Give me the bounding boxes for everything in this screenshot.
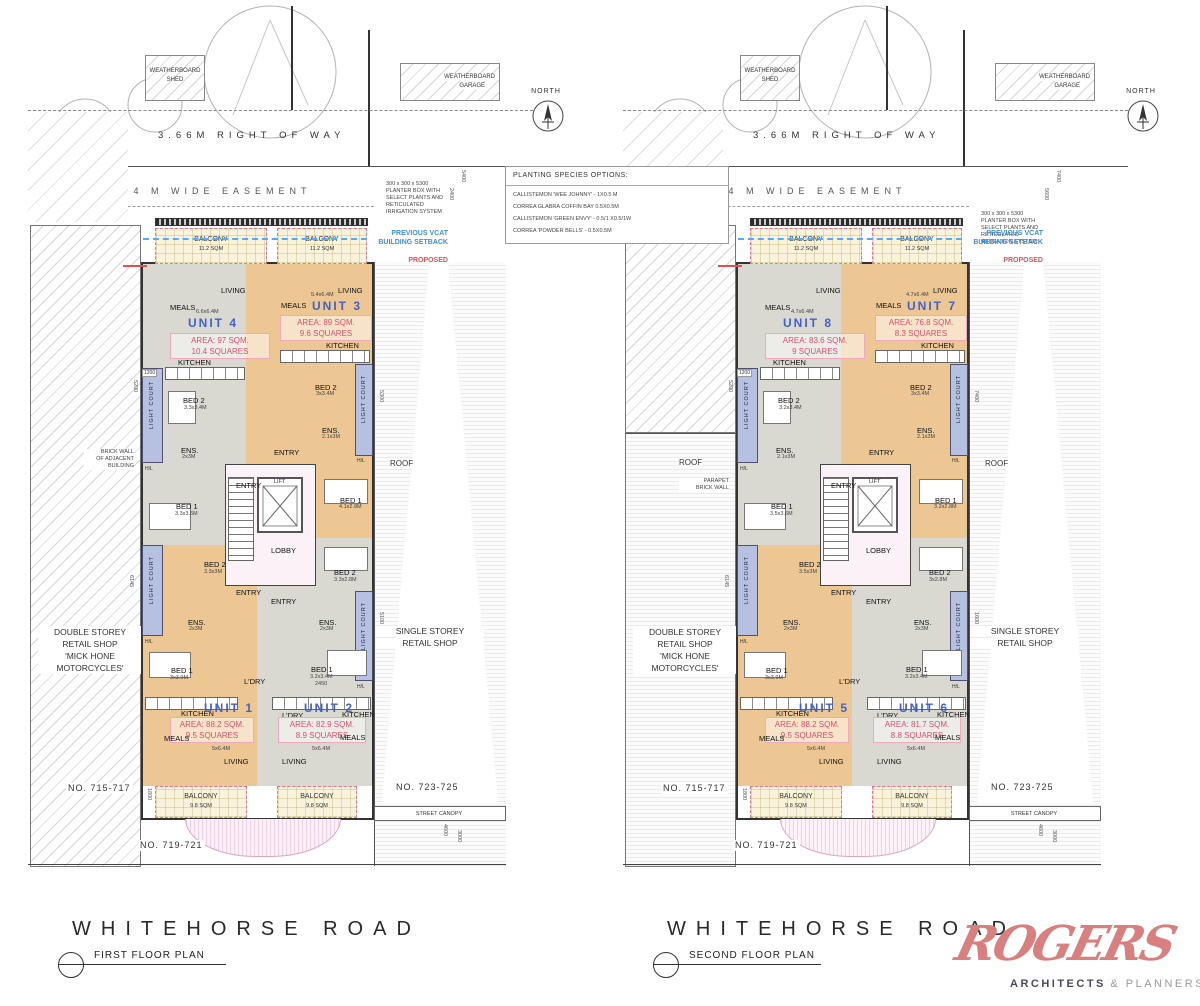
lift-label: LIFT — [869, 479, 880, 486]
retail-right-label-1: SINGLE STOREY — [376, 626, 484, 636]
dim-label: 5400 — [460, 170, 466, 182]
unit-b-squares: 8.3 SQUARES — [878, 328, 964, 339]
unit-b-ens-dim: 2.1x3M — [322, 434, 340, 441]
hl-label: H/L — [740, 466, 748, 472]
garage-label-2: GARAGE — [1054, 83, 1080, 90]
unit-d-dim: 5x6.4M — [907, 746, 925, 753]
no-719-721-label: NO. 719-721 — [138, 840, 205, 851]
unit-c-living: LIVING — [224, 757, 249, 766]
hl-label: H/L — [740, 639, 748, 645]
unit-b-area: AREA: 89 SQM. — [283, 317, 369, 328]
vcat-label-1: PREVIOUS VCAT — [961, 229, 1043, 238]
roof-label: ROOF — [985, 459, 1008, 469]
no-715-717-label: NO. 715-717 — [66, 783, 133, 794]
unit-c-ens-dim: 2x3M — [189, 626, 202, 633]
retail-left-label-2: RETAIL SHOP — [38, 638, 142, 650]
retail-left-label-1: DOUBLE STOREY — [633, 626, 737, 638]
balcony-label: BALCONY — [156, 793, 246, 801]
lift-label: LIFT — [274, 479, 285, 486]
north-compass-icon — [530, 98, 566, 134]
side-note-1: BRICK WALL — [84, 449, 134, 456]
dim-label: 5200 — [727, 380, 733, 392]
entry-canopy — [780, 819, 936, 857]
light-court-right-upper: LIGHT COURT — [950, 364, 968, 456]
right-of-way-label: 3.66M RIGHT OF WAY — [753, 130, 940, 141]
balcony-sqm: 9.8 SQM — [156, 803, 246, 810]
balcony-top-left: BALCONY 11.2 SQM — [155, 228, 267, 264]
planter-box-strip — [155, 218, 368, 226]
balcony-sqm: 9.8 SQM — [751, 803, 841, 810]
no-723-725-label: NO. 723-725 — [989, 782, 1056, 793]
light-court-label: LIGHT COURT — [361, 602, 367, 650]
entry-label: ENTRY — [236, 481, 261, 490]
unit-b-name: UNIT 3 — [312, 299, 362, 313]
lift-cross-icon — [854, 479, 896, 531]
hl-label: H/L — [145, 639, 153, 645]
planter-note-2: PLANTER BOX WITH — [386, 188, 440, 195]
light-court-label: LIGHT COURT — [149, 381, 155, 429]
north-label: NORTH — [523, 88, 569, 96]
hl-label: H/L — [357, 684, 365, 690]
unit-b-dim: 4.7x6.4M — [906, 292, 929, 299]
unit-c-bed2-dim: 3.3x3M — [204, 569, 222, 576]
planter-note-1: 300 x 300 x 5300 — [981, 211, 1023, 218]
entry-label: ENTRY — [274, 448, 299, 457]
rogers-logo-text: ROGERS — [950, 916, 1182, 972]
adjacent-retail-area — [625, 225, 736, 433]
whitehorse-road-label: WHITEHORSE ROAD — [72, 918, 421, 941]
unit-b-name: UNIT 7 — [907, 299, 957, 313]
unit-a-bed1: BED 1 — [176, 502, 198, 511]
unit-c-name: UNIT 1 — [204, 701, 254, 715]
light-court-left-upper: LIGHT COURT — [142, 368, 163, 463]
retail-left-label-4: MOTORCYCLES' — [38, 662, 142, 674]
light-court-label: LIGHT COURT — [956, 375, 962, 423]
hl-label: H/L — [952, 458, 960, 464]
unit-a-dim: 6.6x6.4M — [196, 309, 219, 316]
unit-d-bed1-dim: 3.2x3.4M — [310, 674, 333, 681]
unit-c-ldry: L'DRY — [839, 677, 860, 686]
shed-label-2: SHED — [741, 77, 799, 84]
planter-note-2: PLANTER BOX WITH — [981, 218, 1035, 225]
roof-left-label: ROOF — [679, 458, 702, 468]
unit-b-kitchen: KITCHEN — [326, 341, 359, 350]
unit-d-bed2-dim: 3x2.8M — [929, 577, 947, 584]
planter-note-1: 300 x 300 x 5300 — [386, 181, 428, 188]
unit-d-bed1: BED 1 — [906, 665, 928, 674]
entry-label: ENTRY — [866, 597, 891, 606]
unit-a-bed2-dim: 3.3x3.4M — [184, 405, 207, 412]
unit-a-area: AREA: 97 SQM. — [173, 335, 267, 346]
dim-label: 6145 — [128, 575, 134, 587]
adjacent-retail-area — [30, 225, 141, 867]
unit-a-bed2-dim: 3.2x3.4M — [779, 405, 802, 412]
species-3: CALLISTEMON 'GREEN ENVY' - 0.5/1 X0.5/1W — [513, 216, 631, 223]
lift-cross-icon — [259, 479, 301, 531]
retail-left-label-3: 'MICK HONE — [633, 650, 737, 662]
dim-label: 1800 — [146, 788, 152, 800]
vcat-label-2: BUILDING SETBACK — [961, 238, 1043, 247]
hl-label: H/L — [357, 458, 365, 464]
dim-label: 7400 — [973, 390, 979, 402]
garage-label-1: WEATHERBOARD — [444, 74, 495, 81]
dim-label: 5200 — [132, 380, 138, 392]
unit-b-meals: MEALS — [281, 301, 306, 310]
light-court-left-lower: LIGHT COURT — [142, 545, 163, 636]
dim-label: 5100 — [378, 612, 384, 624]
vcat-label-2: BUILDING SETBACK — [366, 238, 448, 247]
light-court-left-lower: LIGHT COURT — [737, 545, 758, 636]
balcony-sqm: 11.2 SQM — [278, 246, 366, 253]
unit-d-meals: MEALS — [340, 733, 365, 742]
drawing-sheet: WEATHERBOARD SHED WEATHERBOARD GARAGE 3.… — [0, 0, 1200, 1006]
balcony-sqm: 9.8 SQM — [873, 803, 951, 810]
unit-d-ens-dim: 2x3M — [915, 626, 928, 633]
first-floor-plan: WEATHERBOARD SHED WEATHERBOARD GARAGE 3.… — [28, 0, 606, 1006]
species-1: CALLISTEMON 'WEE JOHNNY' - 1X0.5 M — [513, 192, 617, 199]
balcony-sqm: 11.2 SQM — [156, 246, 266, 253]
planting-species-title: PLANTING SPECIES OPTIONS: — [513, 172, 628, 180]
plan-title-line — [58, 964, 94, 965]
logo-architects: ARCHITECTS — [1010, 978, 1106, 990]
unit-b-bed2-dim: 3x3.4M — [316, 391, 334, 398]
dim-label: 1800 — [741, 788, 747, 800]
unit-b-ens-dim: 2.1x3M — [917, 434, 935, 441]
unit-a-squares: 9 SQUARES — [768, 346, 862, 357]
unit-d-area: AREA: 81.7 SQM. — [876, 719, 958, 730]
retail-left-label-2: RETAIL SHOP — [633, 638, 737, 650]
unit-d-bed2-dim: 3.3x2.8M — [334, 577, 357, 584]
no-715-717-label: NO. 715-717 — [661, 783, 728, 794]
unit-b-squares: 9.6 SQUARES — [283, 328, 369, 339]
unit-c-dim: 5x6.4M — [212, 746, 230, 753]
unit-b-bed2-dim: 3x3.4M — [911, 391, 929, 398]
planter-note-3: SELECT PLANTS AND — [386, 195, 443, 202]
kitchen-counter-a — [165, 367, 245, 380]
light-court-left-upper: LIGHT COURT — [737, 368, 758, 463]
unit-a-bed1-dim: 3.3x3.6M — [175, 511, 198, 518]
dim-label: 7400 — [1055, 170, 1061, 182]
unit-a-dim: 4.7x6.4M — [791, 309, 814, 316]
unit-c-living: LIVING — [819, 757, 844, 766]
no-719-721-label: NO. 719-721 — [733, 840, 800, 851]
unit-c-bed1: BED 1 — [171, 666, 193, 675]
unit-c-bed2: BED 2 — [204, 560, 226, 569]
row-dashed-line — [623, 110, 1128, 111]
side-note-2: OF ADJACENT — [84, 456, 134, 463]
balcony-sqm: 11.2 SQM — [873, 246, 961, 253]
balcony-bottom-right: BALCONY 9.8 SQM — [872, 786, 952, 818]
unit-a-bed2: BED 2 — [778, 396, 800, 405]
side-note-1: PARAPET — [679, 478, 729, 485]
unit-a-kitchen: KITCHEN — [178, 358, 211, 367]
unit-b-meals: MEALS — [876, 301, 901, 310]
garage-label-2: GARAGE — [459, 83, 485, 90]
shed-label-1: WEATHERBOARD — [741, 68, 799, 75]
unit-c-bed1: BED 1 — [766, 666, 788, 675]
unit-d-bed1-dim: 3.2x3.4M — [905, 674, 928, 681]
kitchen-counter-a — [760, 367, 840, 380]
entry-label: ENTRY — [271, 597, 296, 606]
unit-a-bed2: BED 2 — [183, 396, 205, 405]
unit-d-living: LIVING — [282, 757, 307, 766]
dim-label: 3000 — [1051, 830, 1057, 842]
unit-b-bed1-dim: 3.2x2.8M — [934, 504, 957, 511]
lift-shaft: LIFT — [257, 477, 303, 533]
plan-title: FIRST FLOOR PLAN — [94, 950, 226, 965]
unit-c-bed1-dim: 3x3.9M — [765, 675, 783, 682]
light-court-label: LIGHT COURT — [744, 381, 750, 429]
unit-d-ens-dim: 2x3M — [320, 626, 333, 633]
light-court-label: LIGHT COURT — [744, 556, 750, 604]
boundary-post-line — [963, 30, 965, 166]
unit-a-kitchen: KITCHEN — [773, 358, 806, 367]
retail-left-label-1: DOUBLE STOREY — [38, 626, 142, 638]
dim-label: 5600 — [1043, 188, 1049, 200]
entry-label: ENTRY — [831, 588, 856, 597]
light-court-label: LIGHT COURT — [361, 375, 367, 423]
side-note-3: BUILDING — [84, 463, 134, 470]
unit-b-bed1-dim: 4.1x2.8M — [339, 504, 362, 511]
lobby-label: LOBBY — [271, 546, 296, 555]
shed-label-1: WEATHERBOARD — [146, 68, 204, 75]
unit-b-dim: 5.4x6.4M — [311, 292, 334, 299]
lift-shaft: LIFT — [852, 477, 898, 533]
unit-a-meals: MEALS — [765, 303, 790, 312]
unit-d-bed1: BED 1 — [311, 665, 333, 674]
vcat-setback-line — [738, 238, 962, 240]
unit-d-bed2: BED 2 — [334, 568, 356, 577]
unit-a-name: UNIT 8 — [783, 316, 833, 330]
light-court-label: LIGHT COURT — [149, 556, 155, 604]
retail-right-label-2: RETAIL SHOP — [376, 638, 484, 648]
row-dashed-line — [28, 110, 533, 111]
unit-a-ens-dim: 2.1x3M — [777, 454, 795, 461]
unit-d-bed2: BED 2 — [929, 568, 951, 577]
balcony-bottom-left: BALCONY 9.8 SQM — [750, 786, 842, 818]
dim-label: 6145 — [723, 575, 729, 587]
plan-title-line — [653, 964, 689, 965]
proposed-setback-line — [123, 265, 147, 267]
vcat-label-1: PREVIOUS VCAT — [366, 229, 448, 238]
balcony-sqm: 9.8 SQM — [278, 803, 356, 810]
entry-canopy — [185, 819, 341, 857]
unit-c-bed1-dim: 3x3.9M — [170, 675, 188, 682]
unit-c-area: AREA: 88.2 SQM. — [768, 719, 846, 730]
garage-label-1: WEATHERBOARD — [1039, 74, 1090, 81]
light-court-label: LIGHT COURT — [956, 602, 962, 650]
north-compass-icon — [1125, 98, 1161, 134]
unit-b-kitchen: KITCHEN — [921, 341, 954, 350]
balcony-label: BALCONY — [751, 793, 841, 801]
street-canopy-strip: STREET CANOPY — [374, 806, 506, 821]
plan-title: SECOND FLOOR PLAN — [689, 950, 821, 965]
bed-rect — [922, 650, 962, 676]
unit-c-dim: 5x6.4M — [807, 746, 825, 753]
balcony-bottom-right: BALCONY 9.8 SQM — [277, 786, 357, 818]
weatherboard-garage: WEATHERBOARD GARAGE — [995, 63, 1095, 101]
roof-label: ROOF — [390, 459, 413, 469]
easement-label: 2.4 M WIDE EASEMENT — [711, 186, 907, 197]
proposed-setback-line — [718, 265, 742, 267]
unit-d-area: AREA: 82.9 SQM. — [281, 719, 363, 730]
retail-left-label-3: 'MICK HONE — [38, 650, 142, 662]
plan-title-symbol — [58, 952, 84, 978]
unit-d-living: LIVING — [877, 757, 902, 766]
unit-c-name: UNIT 5 — [799, 701, 849, 715]
dim-label: 4600 — [442, 824, 448, 836]
planting-species-box: PLANTING SPECIES OPTIONS: CALLISTEMON 'W… — [505, 166, 729, 244]
light-court-right-upper: LIGHT COURT — [355, 364, 373, 456]
planter-note-4: RETICULATED — [386, 202, 424, 209]
shed-label-2: SHED — [146, 77, 204, 84]
vcat-setback-line — [143, 238, 367, 240]
unit-a-living: LIVING — [816, 286, 841, 295]
no-723-725-label: NO. 723-725 — [394, 782, 461, 793]
north-label: NORTH — [1118, 88, 1164, 96]
unit-b-living: LIVING — [338, 286, 363, 295]
street-canopy-strip: STREET CANOPY — [969, 806, 1101, 821]
balcony-label: BALCONY — [873, 793, 951, 801]
unit-b-living: LIVING — [933, 286, 958, 295]
unit-d-bed1-extra: 2450 — [315, 681, 327, 688]
unit-c-bed2-dim: 3.5x3M — [799, 569, 817, 576]
fence-line — [291, 6, 293, 110]
unit-d-meals: MEALS — [935, 733, 960, 742]
weatherboard-shed: WEATHERBOARD SHED — [740, 55, 800, 101]
unit-a-bed1-dim: 3.5x3.6M — [770, 511, 793, 518]
unit-a-living: LIVING — [221, 286, 246, 295]
planter-note-5: IRRIGATION SYSTEM — [386, 209, 442, 216]
entry-label: ENTRY — [236, 588, 261, 597]
unit-c-ens-dim: 2x3M — [784, 626, 797, 633]
unit-c-area: AREA: 88.2 SQM. — [173, 719, 251, 730]
rogers-logo: ROGERS ARCHITECTS & PLANNERS — [950, 916, 1195, 998]
unit-a-bed1: BED 1 — [771, 502, 793, 511]
unit-c-bed2: BED 2 — [799, 560, 821, 569]
driveway-hatch — [28, 112, 128, 222]
unit-a-area: AREA: 83.6 SQM. — [768, 335, 862, 346]
balcony-sqm: 11.2 SQM — [751, 246, 861, 253]
entry-label: ENTRY — [831, 481, 856, 490]
kitchen-counter-b — [280, 350, 370, 363]
retail-right-label-1: SINGLE STOREY — [971, 626, 1079, 636]
second-floor-plan: WEATHERBOARD SHED WEATHERBOARD GARAGE 3.… — [623, 0, 1200, 1006]
dim-label: 5300 — [378, 390, 384, 402]
rogers-logo-script: ROGERS — [950, 916, 1195, 972]
dim-label: 2400 — [448, 188, 454, 200]
unit-b-area-box: AREA: 76.8 SQM.8.3 SQUARES — [875, 315, 967, 341]
right-of-way-label: 3.66M RIGHT OF WAY — [158, 130, 345, 141]
bed-rect — [327, 650, 367, 676]
plan-title-symbol — [653, 952, 679, 978]
retail-left-label-4: MOTORCYCLES' — [633, 662, 737, 674]
dim-label: 1600 — [973, 612, 979, 624]
unit-d-dim: 5x6.4M — [312, 746, 330, 753]
unit-a-meals: MEALS — [170, 303, 195, 312]
unit-a-area-box: AREA: 83.6 SQM.9 SQUARES — [765, 333, 865, 359]
easement-label: 2.4 M WIDE EASEMENT — [116, 186, 312, 197]
unit-c-meals: MEALS — [164, 734, 189, 743]
unit-a-name: UNIT 4 — [188, 316, 238, 330]
unit-a-squares: 10.4 SQUARES — [173, 346, 267, 357]
planter-box-strip — [750, 218, 963, 226]
species-4: CORREA 'POWDER BELLS' - 0.5X0.5M — [513, 228, 612, 235]
unit-c-meals: MEALS — [759, 734, 784, 743]
logo-planners: & PLANNERS — [1110, 978, 1200, 990]
retail-right-label-2: RETAIL SHOP — [971, 638, 1079, 648]
unit-b-area: AREA: 76.8 SQM. — [878, 317, 964, 328]
balcony-top-right: BALCONY 11.2 SQM — [277, 228, 367, 264]
street-canopy-label: STREET CANOPY — [970, 811, 1098, 818]
unit-a-ens-dim: 2x3M — [182, 454, 195, 461]
fence-line — [886, 6, 888, 110]
dim-label: 3000 — [456, 830, 462, 842]
unit-a-area-box: AREA: 97 SQM.10.4 SQUARES — [170, 333, 270, 359]
dim-label: 1200 — [737, 369, 752, 377]
entry-label: ENTRY — [869, 448, 894, 457]
boundary-post-line — [368, 30, 370, 166]
dim-label: 4600 — [1037, 824, 1043, 836]
site-boundary-line — [28, 864, 506, 865]
species-2: CORREA GLABRA COFFIN BAY 0.5X0.5M — [513, 204, 619, 211]
weatherboard-shed: WEATHERBOARD SHED — [145, 55, 205, 101]
hl-label: H/L — [952, 684, 960, 690]
side-note-2: BRICK WALL — [679, 485, 729, 492]
kitchen-counter-b — [875, 350, 965, 363]
street-canopy-label: STREET CANOPY — [375, 811, 503, 818]
lobby-label: LOBBY — [866, 546, 891, 555]
dim-label: 1200 — [142, 369, 157, 377]
unit-b-area-box: AREA: 89 SQM.9.6 SQUARES — [280, 315, 372, 341]
site-boundary-line — [623, 864, 1101, 865]
unit-c-ldry: L'DRY — [244, 677, 265, 686]
balcony-top-right: BALCONY 11.2 SQM — [872, 228, 962, 264]
weatherboard-garage: WEATHERBOARD GARAGE — [400, 63, 500, 101]
balcony-label: BALCONY — [278, 793, 356, 801]
balcony-bottom-left: BALCONY 9.8 SQM — [155, 786, 247, 818]
divider — [506, 185, 728, 186]
hl-label: H/L — [145, 466, 153, 472]
logo-subtitle: ARCHITECTS & PLANNERS — [1010, 974, 1200, 992]
balcony-top-left: BALCONY 11.2 SQM — [750, 228, 862, 264]
